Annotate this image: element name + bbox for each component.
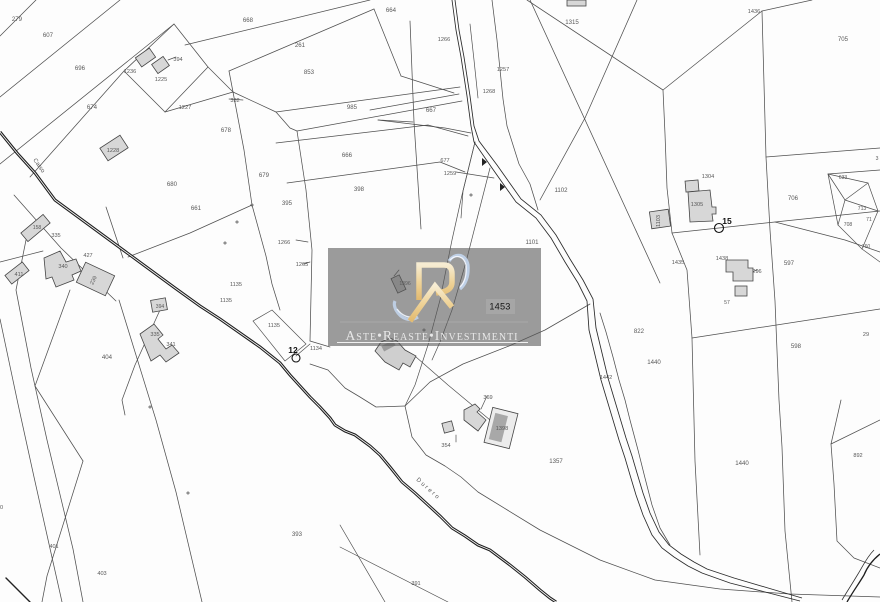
svg-text:1438: 1438 [716, 256, 728, 262]
svg-text:335: 335 [150, 332, 159, 338]
svg-text:369: 369 [483, 395, 492, 401]
svg-text:427: 427 [83, 253, 92, 259]
svg-text:1101: 1101 [525, 239, 539, 246]
svg-text:822: 822 [634, 328, 645, 335]
svg-text:598: 598 [791, 343, 802, 350]
svg-text:15: 15 [722, 216, 732, 226]
svg-text:713: 713 [858, 206, 867, 212]
svg-text:1227: 1227 [179, 105, 191, 111]
svg-text:696: 696 [75, 65, 86, 72]
svg-text:1236: 1236 [124, 69, 136, 75]
svg-text:680: 680 [167, 181, 178, 188]
svg-text:Aste•Reaste•Investimenti: Aste•Reaste•Investimenti [345, 328, 518, 343]
svg-text:12: 12 [288, 345, 298, 355]
svg-text:1442: 1442 [600, 375, 612, 381]
svg-text:1436: 1436 [748, 9, 760, 15]
svg-text:1440: 1440 [735, 460, 749, 467]
svg-text:597: 597 [784, 260, 795, 267]
svg-text:1440: 1440 [647, 359, 661, 366]
svg-text:1304: 1304 [702, 174, 714, 180]
svg-text:661: 661 [191, 205, 202, 212]
svg-text:335: 335 [51, 233, 60, 239]
svg-text:1266: 1266 [438, 37, 450, 43]
svg-text:57: 57 [724, 300, 730, 306]
svg-text:1257: 1257 [497, 67, 509, 73]
svg-text:853: 853 [304, 69, 315, 76]
svg-text:394: 394 [156, 304, 165, 310]
svg-text:71: 71 [866, 217, 872, 223]
svg-text:391: 391 [411, 581, 420, 587]
svg-text:706: 706 [788, 195, 799, 202]
svg-text:354: 354 [441, 443, 450, 449]
svg-text:892: 892 [853, 453, 862, 459]
svg-text:404: 404 [102, 354, 113, 361]
svg-text:1435: 1435 [672, 260, 684, 266]
svg-text:395: 395 [282, 200, 293, 207]
svg-text:1398: 1398 [496, 426, 508, 432]
svg-text:1135: 1135 [220, 298, 232, 304]
svg-text:679: 679 [259, 172, 270, 179]
svg-text:1259: 1259 [444, 171, 456, 177]
svg-text:296: 296 [752, 269, 761, 275]
svg-text:261: 261 [295, 42, 306, 49]
svg-text:158: 158 [33, 225, 42, 231]
svg-text:677: 677 [440, 158, 449, 164]
svg-text:394: 394 [173, 57, 182, 63]
svg-text:340: 340 [58, 264, 67, 270]
svg-text:398: 398 [354, 186, 365, 193]
svg-text:633: 633 [839, 175, 848, 181]
svg-text:403: 403 [97, 571, 106, 577]
svg-text:1266: 1266 [278, 240, 290, 246]
svg-text:667: 667 [426, 107, 437, 114]
svg-text:393: 393 [292, 531, 303, 538]
svg-text:1305: 1305 [691, 202, 703, 208]
svg-text:705: 705 [838, 36, 849, 43]
svg-text:1225: 1225 [155, 77, 167, 83]
svg-text:1134: 1134 [310, 346, 322, 352]
svg-text:1357: 1357 [549, 458, 563, 465]
svg-text:1135: 1135 [268, 323, 280, 329]
svg-text:341: 341 [166, 342, 175, 348]
svg-text:411: 411 [15, 272, 24, 278]
svg-text:674: 674 [87, 104, 98, 111]
svg-text:664: 664 [386, 7, 397, 14]
svg-text:607: 607 [43, 32, 54, 39]
svg-text:666: 666 [342, 152, 353, 159]
svg-text:29: 29 [863, 332, 869, 338]
svg-text:1268: 1268 [483, 89, 495, 95]
svg-text:1228: 1228 [107, 148, 119, 154]
svg-text:1102: 1102 [554, 187, 568, 194]
svg-text:401: 401 [49, 544, 58, 550]
svg-text:40: 40 [0, 505, 3, 511]
svg-text:985: 985 [347, 104, 358, 111]
svg-text:678: 678 [221, 127, 232, 134]
svg-text:1135: 1135 [230, 282, 242, 288]
svg-text:1453: 1453 [489, 302, 510, 312]
svg-text:1265: 1265 [296, 262, 308, 268]
svg-text:760: 760 [862, 244, 871, 250]
svg-text:1103: 1103 [656, 215, 662, 227]
svg-text:668: 668 [243, 17, 254, 24]
svg-text:279: 279 [12, 16, 23, 23]
svg-text:1315: 1315 [565, 19, 579, 26]
svg-text:708: 708 [844, 222, 853, 228]
svg-text:3: 3 [876, 156, 879, 162]
svg-text:332: 332 [230, 98, 239, 104]
